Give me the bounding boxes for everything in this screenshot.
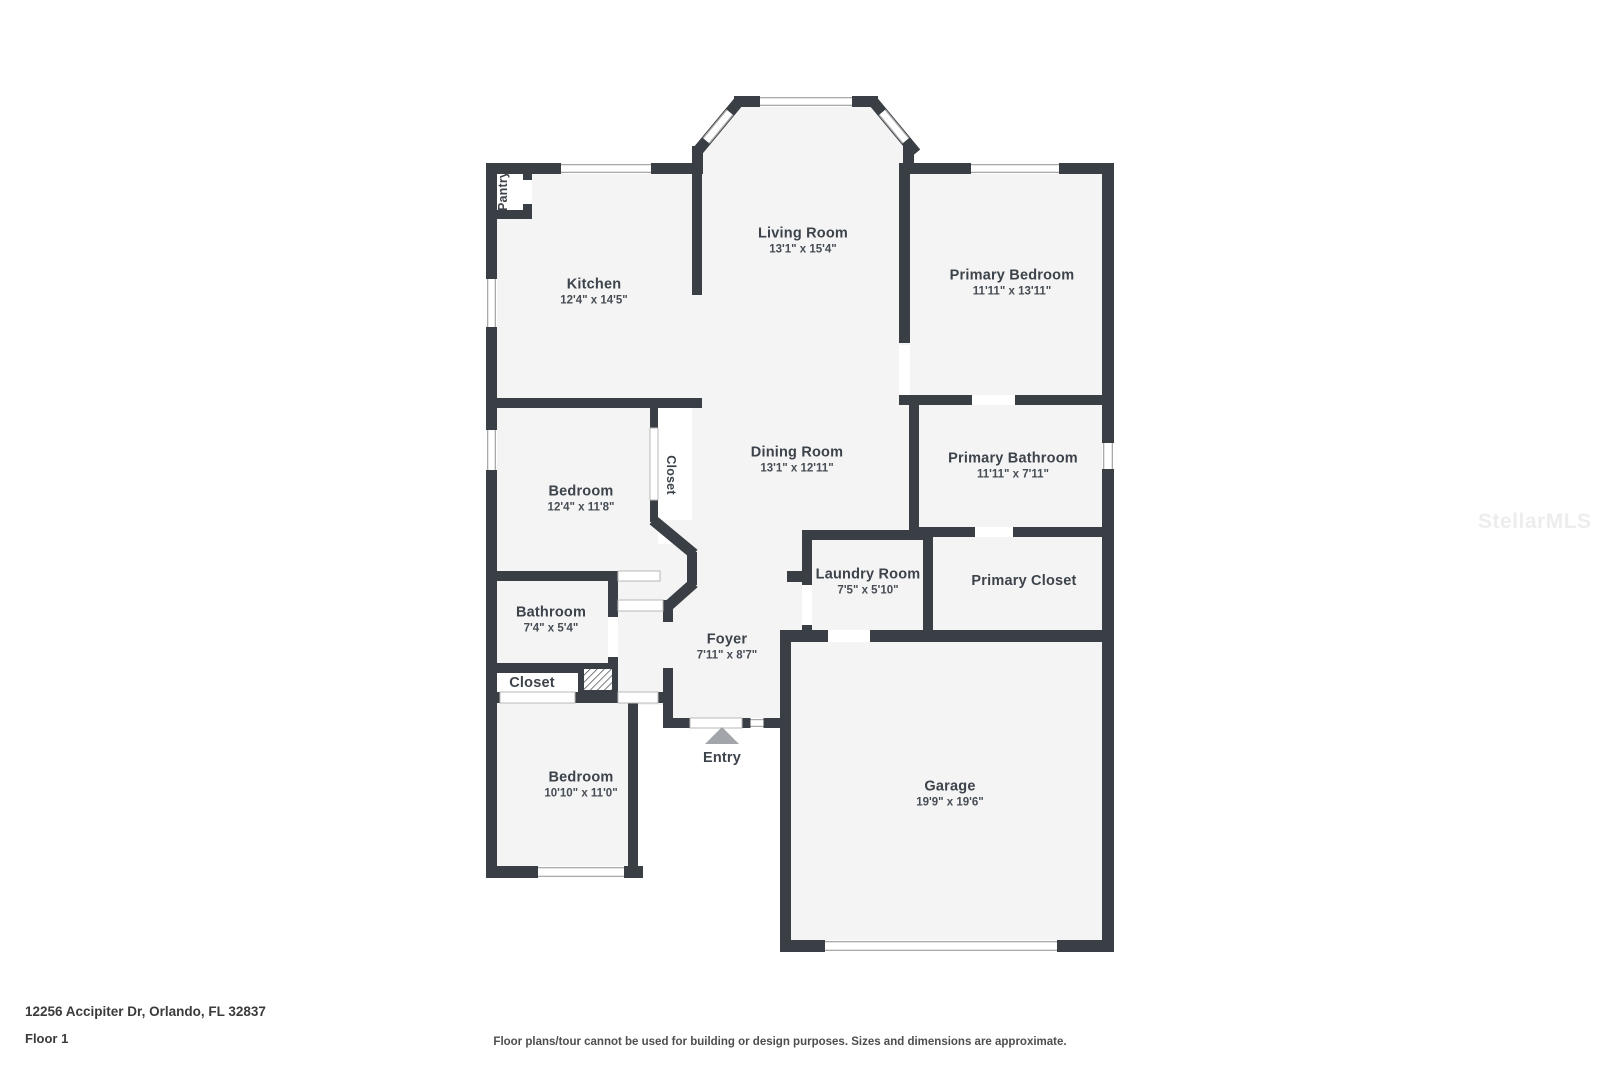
room-label-primary-closet: Primary Closet — [971, 573, 1076, 589]
room-label-bedroom-bottom: Bedroom 10'10" x 11'0" — [544, 770, 617, 801]
room-dims: 13'1" x 12'11" — [751, 462, 843, 476]
room-name: Primary Closet — [971, 573, 1076, 589]
room-name: Primary Bedroom — [950, 268, 1075, 284]
hatch-box — [583, 668, 613, 691]
room-label-bedroom-mid: Bedroom 12'4" x 11'8" — [548, 484, 615, 515]
room-name: Bathroom — [516, 605, 586, 621]
entry-sidelight-window — [748, 718, 766, 728]
room-name: Bedroom — [548, 484, 615, 500]
room-name: Garage — [916, 779, 984, 795]
room-name: Bedroom — [544, 770, 617, 786]
room-dims: 10'10" x 11'0" — [544, 787, 617, 801]
floor-plan-page: Pantry Kitchen 12'4" x 14'5" Living Room… — [0, 0, 1600, 1066]
room-name: Dining Room — [751, 445, 843, 461]
room-label-bathroom: Bathroom 7'4" x 5'4" — [516, 605, 586, 636]
room-label-entry: Entry — [703, 750, 741, 766]
room-dims: 11'11" x 7'11" — [948, 468, 1078, 482]
room-dims: 7'4" x 5'4" — [516, 622, 586, 636]
room-dims: 13'1" x 15'4" — [758, 243, 848, 257]
room-label-living-room: Living Room 13'1" x 15'4" — [758, 226, 848, 257]
room-dims: 12'4" x 11'8" — [548, 501, 615, 515]
room-name: Closet — [663, 455, 679, 494]
room-label-closet: Closet — [509, 675, 555, 691]
room-label-dining-room: Dining Room 13'1" x 12'11" — [751, 445, 843, 476]
room-label-foyer: Foyer 7'11" x 8'7" — [697, 632, 758, 663]
room-name: Foyer — [697, 632, 758, 648]
property-address: 12256 Accipiter Dr, Orlando, FL 32837 — [25, 1004, 266, 1019]
room-name: Laundry Room — [816, 567, 921, 583]
room-name: Primary Bathroom — [948, 451, 1078, 467]
floor-plan-drawing — [0, 0, 1600, 1066]
room-label-primary-bathroom: Primary Bathroom 11'11" x 7'11" — [948, 451, 1078, 482]
room-label-kitchen: Kitchen 12'4" x 14'5" — [560, 277, 628, 308]
bay-window-top — [757, 96, 855, 107]
entry-arrow-icon — [705, 727, 739, 744]
room-dims: 12'4" x 14'5" — [560, 294, 628, 308]
room-label-hall-closet: Closet — [663, 455, 679, 494]
room-dims: 11'11" x 13'11" — [950, 285, 1075, 299]
disclaimer-text: Floor plans/tour cannot be used for buil… — [493, 1036, 1066, 1048]
room-label-garage: Garage 19'9" x 19'6" — [916, 779, 984, 810]
room-name: Entry — [703, 750, 741, 766]
room-label-primary-bedroom: Primary Bedroom 11'11" x 13'11" — [950, 268, 1075, 299]
floor-indicator: Floor 1 — [25, 1031, 68, 1046]
room-label-pantry: Pantry — [495, 171, 511, 211]
room-name: Pantry — [495, 171, 511, 211]
room-name: Living Room — [758, 226, 848, 242]
room-name: Closet — [509, 675, 555, 691]
room-name: Kitchen — [560, 277, 628, 293]
garage-door — [825, 940, 1057, 952]
stellar-mls-watermark: StellarMLS — [1478, 510, 1592, 534]
room-dims: 19'9" x 19'6" — [916, 796, 984, 810]
room-dims: 7'5" x 5'10" — [816, 584, 921, 598]
room-dims: 7'11" x 8'7" — [697, 649, 758, 663]
room-label-laundry-room: Laundry Room 7'5" x 5'10" — [816, 567, 921, 598]
